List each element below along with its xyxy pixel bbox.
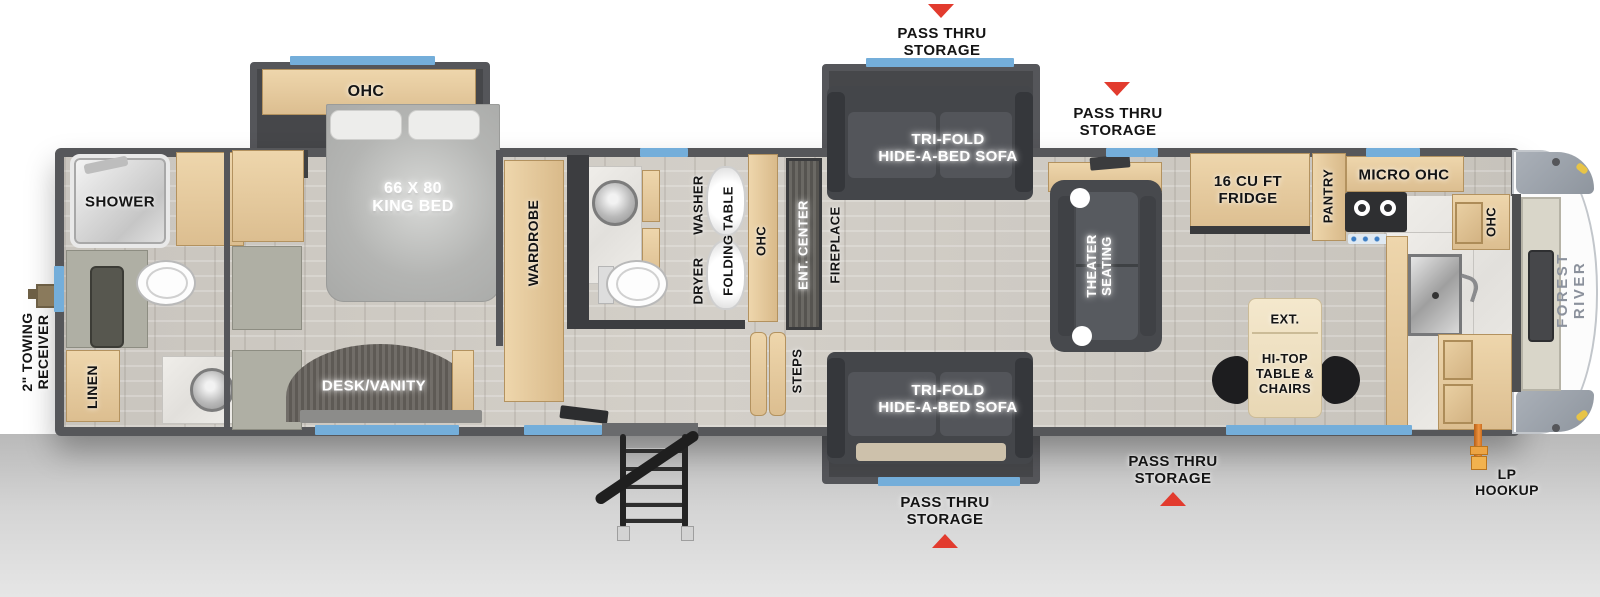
theater-armrest — [1058, 196, 1074, 336]
step-foot — [617, 526, 630, 541]
bath2-drawers — [642, 170, 660, 222]
sofa-bottom-arm — [1015, 358, 1033, 458]
pass-thru-label-bottom-2: PASS THRU STORAGE — [1128, 453, 1217, 487]
desk-end-cabinet — [452, 350, 474, 412]
bath-wall-bottom — [567, 320, 745, 329]
fridge-front-edge — [1190, 226, 1310, 234]
interior-steps — [769, 332, 786, 416]
window — [1106, 148, 1158, 157]
interior-steps — [750, 332, 767, 416]
wardrobe-label: WARDROBE — [526, 200, 542, 286]
theater-armrest — [1140, 196, 1156, 336]
ent-center-label: ENT. CENTER — [797, 200, 812, 290]
window — [1226, 425, 1412, 435]
step-foot — [681, 526, 694, 541]
pass-thru-arrow-icon — [1104, 82, 1130, 96]
hitop-table-seam — [1252, 332, 1318, 334]
hitch-stub-icon — [28, 289, 37, 299]
pass-thru-arrow-icon — [1160, 492, 1186, 506]
pillow — [330, 110, 402, 140]
shower-label: SHOWER — [85, 193, 155, 210]
kitchen-ohc-label: OHC — [1485, 207, 1500, 237]
cabinet-door — [1443, 384, 1473, 424]
desk-shelf — [300, 410, 482, 423]
window — [878, 477, 1020, 486]
ground-shadow — [0, 434, 1600, 597]
bedroom-dresser — [232, 150, 304, 242]
pass-thru-label-top-2: PASS THRU STORAGE — [1073, 105, 1162, 139]
dryer-label: DRYER — [692, 257, 707, 304]
bath2-sink-icon — [592, 180, 638, 226]
king-bed-label: 66 X 80 KING BED — [372, 180, 453, 216]
cabinet-door — [1455, 202, 1483, 244]
tv-icon — [1528, 250, 1554, 342]
lp-fitting-icon — [1470, 446, 1488, 455]
steps-label: STEPS — [791, 349, 806, 394]
bedroom-door-panel — [232, 246, 302, 330]
toilet-mid-seat — [616, 267, 660, 301]
window — [640, 148, 688, 157]
folding-table-label: FOLDING TABLE — [722, 186, 737, 296]
pass-thru-arrow-icon — [928, 4, 954, 18]
window — [315, 425, 459, 435]
linen-label: LINEN — [85, 365, 101, 409]
sofa-bottom-kickpanel — [856, 443, 1006, 461]
pass-thru-arrow-icon — [932, 534, 958, 548]
brand-label: FOREST RIVER — [1554, 252, 1588, 328]
cap-rivet-bottom — [1552, 424, 1560, 432]
lp-hookup-label: LP HOOKUP — [1475, 467, 1539, 499]
sofa-top-label: TRI-FOLD HIDE-A-BED SOFA — [878, 131, 1017, 165]
micro-ohc-label: MICRO OHC — [1358, 166, 1449, 183]
cupholder-icon — [1070, 188, 1090, 208]
cabinet-door — [1443, 340, 1473, 380]
window — [1366, 148, 1420, 157]
burner-icon — [1380, 200, 1396, 216]
cupholder-icon — [1072, 326, 1092, 346]
sofa-top-arm — [827, 92, 845, 192]
theater-label: THEATER SEATING — [1085, 234, 1115, 297]
midbath-ohc-label: OHC — [755, 226, 770, 256]
washer-label: WASHER — [692, 175, 707, 234]
step-rung — [626, 484, 682, 489]
bedroom-bath-wall — [496, 150, 503, 346]
toilet-front-seat — [146, 267, 188, 299]
vanity-mirror — [90, 266, 124, 348]
counter-cabinet-face — [1386, 236, 1408, 428]
bath-bedroom-wall — [224, 150, 230, 428]
rv-floorplan: FOREST RIVER SHOWER LINEN 2" TOWING RECE… — [0, 0, 1600, 597]
cap-inner-wall — [1512, 194, 1521, 392]
window — [290, 56, 435, 65]
burner-icon — [1354, 200, 1370, 216]
bedroom-ohc-label: OHC — [348, 83, 385, 101]
bath-wall-left — [567, 155, 589, 327]
towing-receiver-label: 2" TOWING RECEIVER — [20, 312, 52, 391]
fridge-label: 16 CU FT FRIDGE — [1214, 173, 1282, 207]
desk-vanity-label: DESK/VANITY — [322, 377, 426, 394]
pass-thru-label-bottom-1: PASS THRU STORAGE — [900, 494, 989, 528]
pantry-label: PANTRY — [1322, 169, 1337, 223]
pillow — [408, 110, 480, 140]
sofa-bottom-arm — [827, 358, 845, 458]
sofa-top-arm — [1015, 92, 1033, 192]
sink-drain-icon — [1432, 292, 1439, 299]
sofa-bottom-label: TRI-FOLD HIDE-A-BED SOFA — [878, 382, 1017, 416]
step-rung — [626, 502, 682, 507]
ext-label: EXT. — [1270, 313, 1299, 328]
fireplace-label: FIREPLACE — [829, 206, 844, 283]
step-rung — [626, 518, 682, 523]
pass-thru-label-top-1: PASS THRU STORAGE — [897, 25, 986, 59]
window — [54, 266, 64, 312]
cap-rivet-top — [1552, 158, 1560, 166]
window — [866, 58, 1014, 67]
hitop-label: HI-TOP TABLE & CHAIRS — [1256, 352, 1314, 396]
window — [524, 425, 602, 435]
